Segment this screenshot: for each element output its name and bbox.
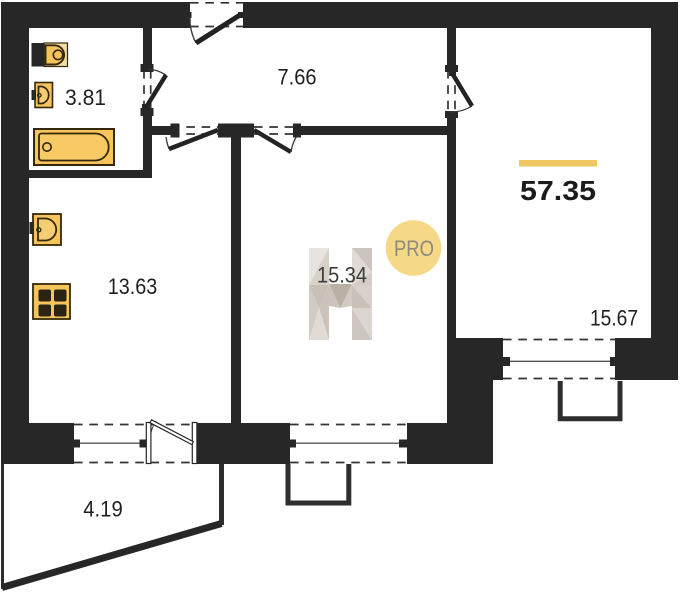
svg-text:13.63: 13.63 <box>108 274 158 299</box>
svg-text:15.34: 15.34 <box>317 263 367 288</box>
svg-text:4.19: 4.19 <box>83 497 123 522</box>
svg-text:7.66: 7.66 <box>278 65 317 90</box>
svg-text:3.81: 3.81 <box>65 85 106 110</box>
svg-text:PRO: PRO <box>394 236 434 261</box>
svg-text:57.35: 57.35 <box>520 175 596 206</box>
svg-text:15.67: 15.67 <box>590 306 638 331</box>
